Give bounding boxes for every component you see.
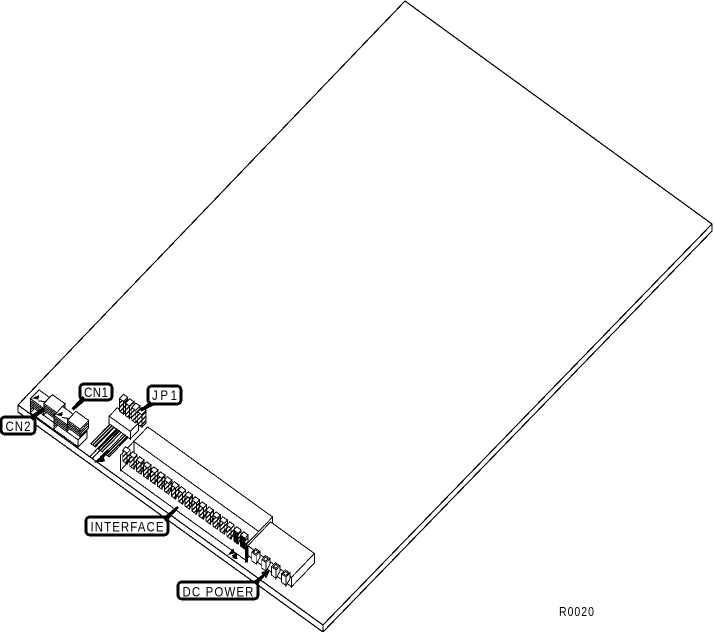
svg-text:INTERFACE: INTERFACE	[91, 518, 164, 534]
svg-text:R0020: R0020	[559, 605, 594, 619]
svg-text:CN2: CN2	[6, 418, 31, 434]
svg-text:DC POWER: DC POWER	[183, 583, 254, 599]
svg-text:CN1: CN1	[84, 384, 108, 400]
svg-text:JP1: JP1	[152, 387, 177, 403]
